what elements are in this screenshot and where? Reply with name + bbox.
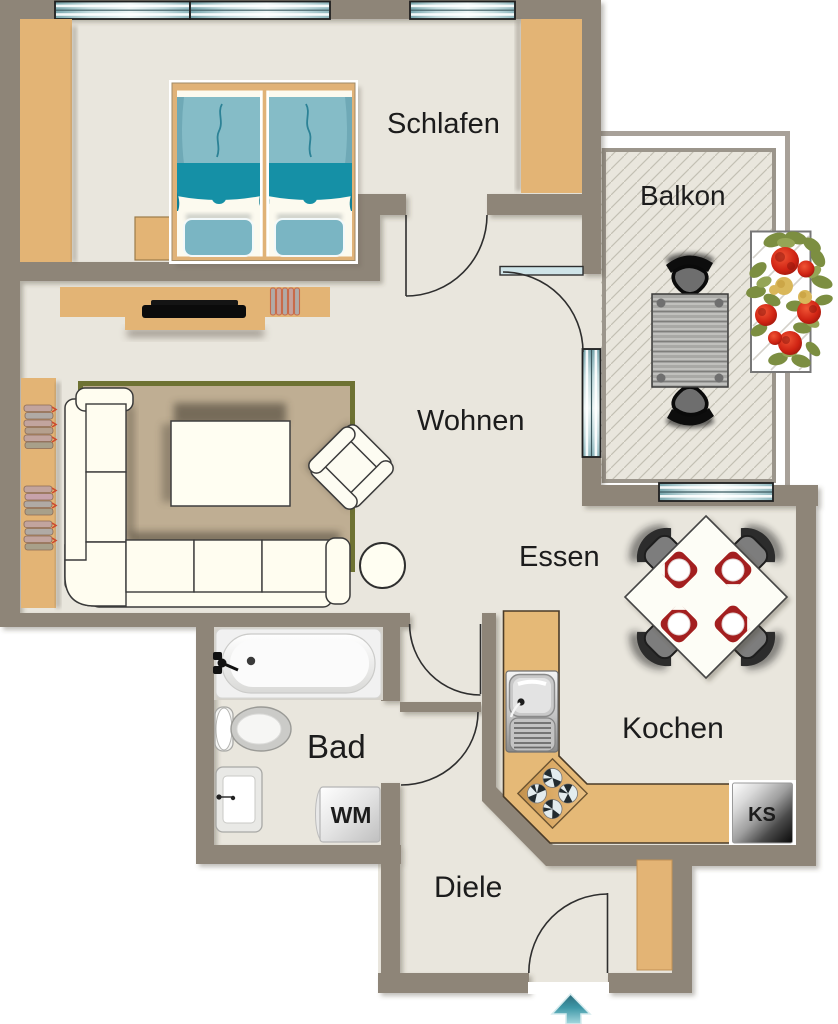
- svg-text:Balkon: Balkon: [640, 180, 726, 211]
- svg-text:Bad: Bad: [307, 728, 366, 765]
- svg-text:Essen: Essen: [519, 541, 600, 573]
- svg-text:KS: KS: [748, 804, 776, 826]
- svg-text:Schlafen: Schlafen: [387, 108, 500, 140]
- svg-text:Kochen: Kochen: [622, 712, 724, 745]
- svg-text:Diele: Diele: [434, 871, 502, 904]
- svg-text:WM: WM: [331, 802, 372, 828]
- svg-text:Wohnen: Wohnen: [417, 405, 525, 437]
